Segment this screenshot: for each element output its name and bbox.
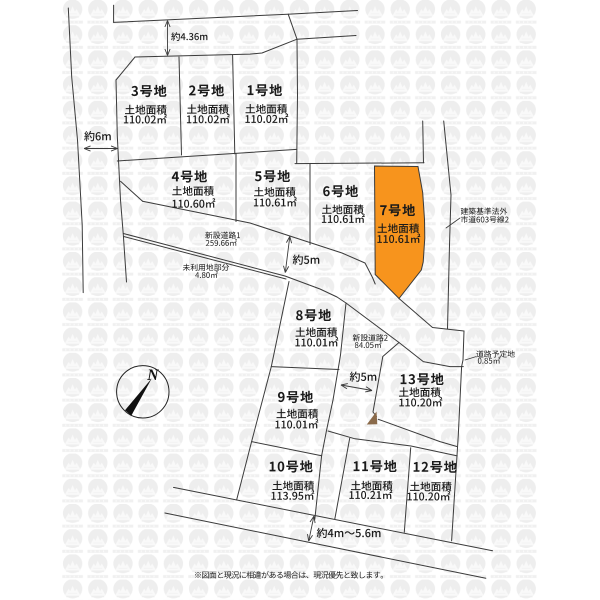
svg-text:N: N xyxy=(146,367,159,384)
